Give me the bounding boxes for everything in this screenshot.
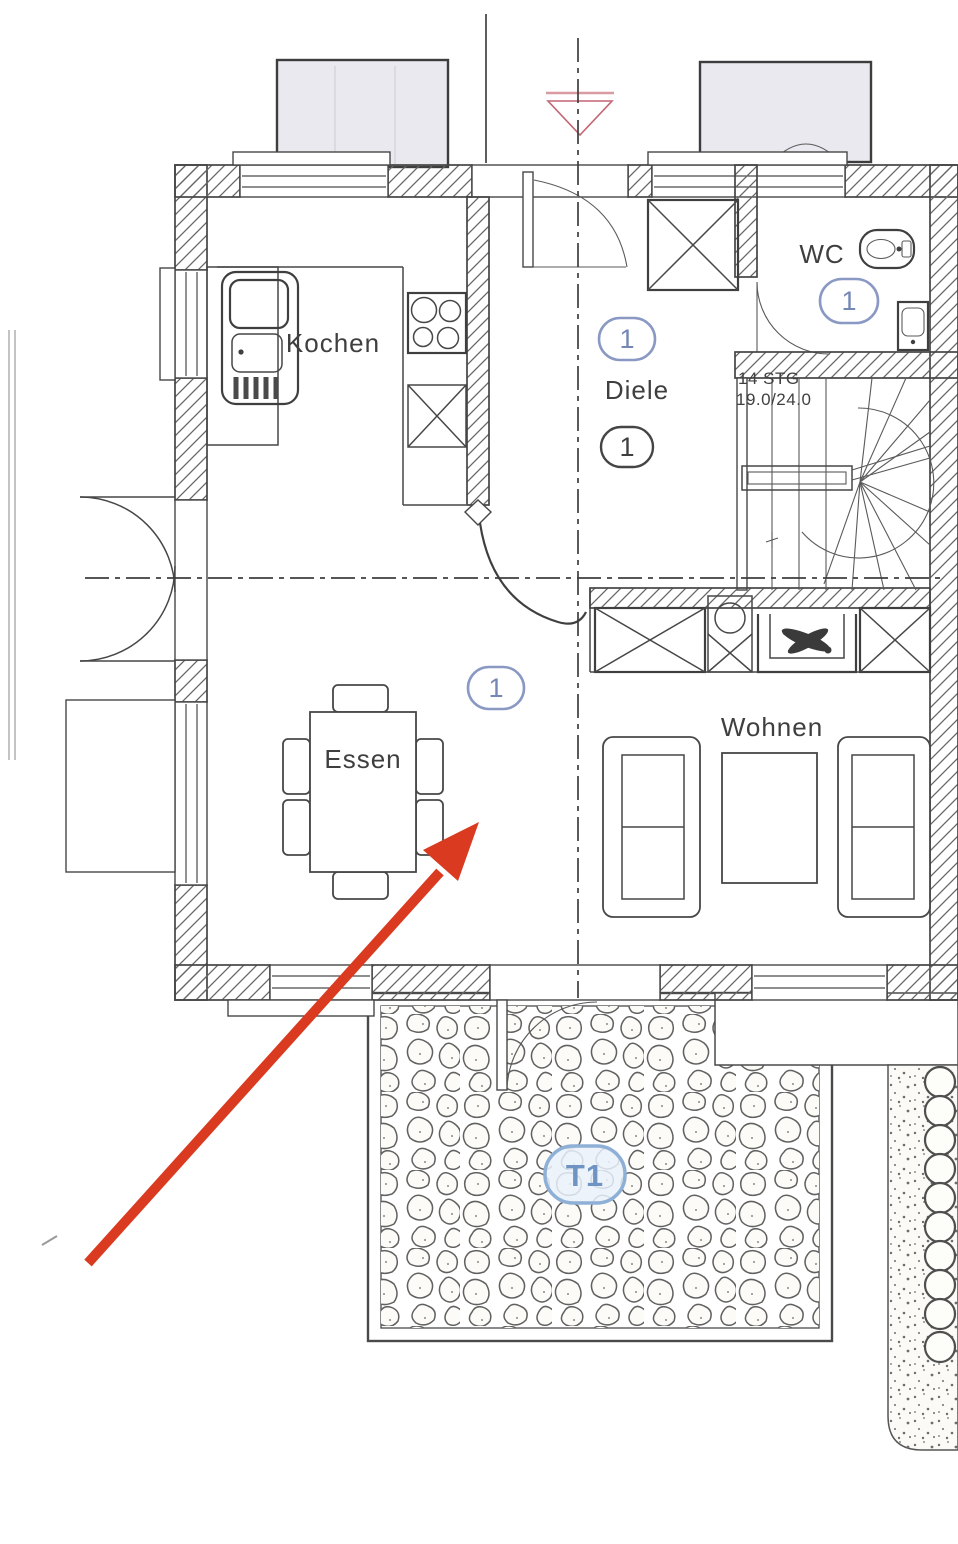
- room-label-wc: WC: [799, 239, 844, 269]
- shaft-box: [860, 608, 930, 672]
- chair: [283, 800, 310, 855]
- window-kitchen-left: [160, 268, 207, 380]
- room-label-living: Wohnen: [721, 712, 823, 742]
- wall-top: [175, 165, 240, 197]
- door-swing-arc: [757, 282, 830, 354]
- svg-text:1: 1: [841, 286, 856, 316]
- dining-table: [310, 712, 416, 872]
- wall-left: [175, 660, 207, 702]
- shaft-box: [648, 200, 738, 290]
- wall-bottom: [175, 965, 270, 1000]
- washbasin: [898, 302, 928, 350]
- wall-bottom: [887, 965, 958, 1000]
- window-sill-box: [228, 1000, 374, 1016]
- staircase: 14 STG 19.0/24.0: [736, 369, 934, 590]
- sofa: [603, 737, 700, 917]
- marker-hall-floor: 1: [601, 427, 653, 467]
- wall-left: [175, 378, 207, 500]
- coffee-table: [722, 753, 817, 883]
- svg-text:1: 1: [488, 673, 503, 703]
- cabinet-box: [408, 385, 466, 447]
- french-doors-left: [80, 497, 207, 661]
- window-box-exterior: [66, 700, 175, 872]
- window-kitchen-top: [233, 152, 390, 197]
- wall-bottom: [660, 965, 752, 1000]
- red-triangle-icon: [548, 101, 612, 135]
- svg-text:1: 1: [619, 324, 634, 354]
- wall-right: [930, 165, 958, 1000]
- marker-dining-unit: 1: [468, 667, 524, 709]
- marker-terrace: T1: [545, 1146, 625, 1203]
- stove: [408, 293, 466, 353]
- stairs-label-line1: 14 STG: [738, 369, 800, 388]
- wall-hall-living: [590, 588, 930, 608]
- room-label-kitchen: Kochen: [286, 328, 380, 358]
- stairs-label-line2: 19.0/24.0: [736, 390, 811, 409]
- chair: [333, 872, 388, 899]
- stair-winder-curve: [802, 408, 934, 558]
- room-label-dining: Essen: [324, 744, 401, 774]
- firewood-logs: [779, 624, 832, 657]
- floor-plan-drawing: 14 STG 19.0/24.0: [0, 0, 958, 1544]
- svg-text:T1: T1: [566, 1158, 604, 1193]
- dormer-right: [700, 62, 871, 162]
- entrance-door-top: [472, 165, 628, 267]
- wall-bottom: [372, 965, 490, 1000]
- doorstep-slab: [715, 993, 958, 1065]
- door-swing-arc: [80, 566, 175, 661]
- window-sill-box: [648, 152, 847, 165]
- wall-top: [388, 165, 472, 197]
- window-sill-box: [160, 268, 175, 380]
- fireplace: [758, 614, 856, 672]
- kitchen-door-curve: [480, 523, 586, 624]
- dining-furniture: [283, 685, 443, 899]
- door-leaf: [497, 1000, 507, 1090]
- floor-plan-page: 14 STG 19.0/24.0: [0, 0, 958, 1544]
- chair: [333, 685, 388, 712]
- chair: [416, 739, 443, 794]
- window-dining-left: [66, 700, 207, 885]
- kitchen-fixtures: [207, 267, 466, 505]
- entrance-symbol: [546, 93, 614, 135]
- living-furniture: [603, 737, 930, 917]
- window-sill-box: [233, 152, 390, 165]
- dormer-left: [277, 60, 448, 167]
- stair-break-mark: [766, 532, 778, 548]
- marker-wc-unit: 1: [820, 279, 878, 323]
- site-boundary-lines: [9, 330, 15, 760]
- svg-text:1: 1: [619, 432, 634, 462]
- window-living-bottom: [752, 965, 887, 1000]
- door-leaf: [523, 172, 533, 267]
- pencil-tick: [42, 1236, 57, 1245]
- wall-kitchen-hall: [467, 197, 489, 505]
- counter-left: [207, 267, 278, 445]
- wc-door: [757, 282, 830, 354]
- shaft-box: [595, 608, 705, 672]
- room-label-hall: Diele: [605, 375, 669, 405]
- toilet: [860, 230, 914, 268]
- sofa: [838, 737, 930, 917]
- sink-drainer: [236, 377, 276, 399]
- marker-hall-unit: 1: [599, 318, 655, 360]
- wc-fixtures: [860, 230, 928, 350]
- chair: [283, 739, 310, 794]
- wall-top: [628, 165, 652, 197]
